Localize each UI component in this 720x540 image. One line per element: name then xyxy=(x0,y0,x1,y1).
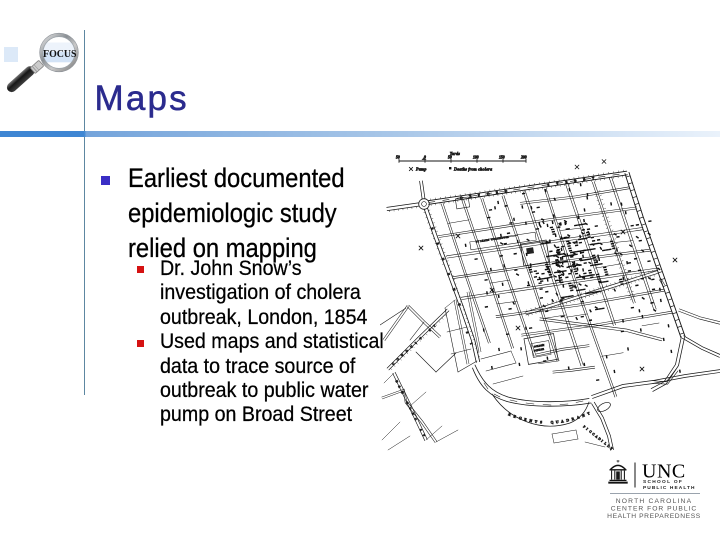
svg-text:Deaths from cholera: Deaths from cholera xyxy=(453,167,492,172)
svg-text:PUBLIC HEALTH: PUBLIC HEALTH xyxy=(643,485,696,491)
svg-text:SQUARE: SQUARE xyxy=(534,348,545,353)
svg-text:E: E xyxy=(574,179,577,183)
svg-text:F: F xyxy=(478,193,481,197)
svg-text:T: T xyxy=(587,411,591,416)
svg-text:R: R xyxy=(508,412,512,417)
svg-text:HEALTH PREPAREDNESS: HEALTH PREPAREDNESS xyxy=(607,513,701,520)
svg-text:100: 100 xyxy=(473,156,479,160)
svg-text:A: A xyxy=(576,415,580,420)
svg-text:E: E xyxy=(583,178,586,182)
svg-text:N: N xyxy=(395,380,399,383)
svg-text:ST JAMES WORKHOUSE: ST JAMES WORKHOUSE xyxy=(476,236,510,244)
svg-text:I: I xyxy=(600,439,603,443)
svg-text:E: E xyxy=(397,385,401,388)
svg-text:D: D xyxy=(566,418,570,423)
svg-text:E: E xyxy=(524,417,528,422)
svg-text:T: T xyxy=(469,342,473,345)
svg-text:50: 50 xyxy=(448,156,452,160)
svg-text:200: 200 xyxy=(521,156,527,160)
svg-text:I: I xyxy=(585,427,588,431)
svg-text:G: G xyxy=(441,257,446,261)
svg-text:N: N xyxy=(582,413,586,418)
svg-text:50: 50 xyxy=(396,156,400,160)
svg-text:S: S xyxy=(540,420,542,424)
svg-text:U: U xyxy=(409,344,414,349)
svg-text:S: S xyxy=(428,328,432,332)
svg-text:U: U xyxy=(556,420,559,424)
svg-text:S: S xyxy=(547,183,550,187)
svg-text:T: T xyxy=(432,324,436,328)
svg-text:R: R xyxy=(430,227,435,231)
svg-text:CENTER FOR PUBLIC: CENTER FOR PUBLIC xyxy=(611,506,697,513)
svg-text:E: E xyxy=(435,242,439,245)
svg-text:D: D xyxy=(405,349,409,353)
svg-text:SCHOOL OF: SCHOOL OF xyxy=(643,479,683,485)
svg-text:NORTH CAROLINA: NORTH CAROLINA xyxy=(616,498,693,505)
svg-text:FOCUS: FOCUS xyxy=(43,49,77,60)
svg-text:150: 150 xyxy=(499,156,505,160)
svg-text:N: N xyxy=(529,419,533,424)
svg-text:T: T xyxy=(422,434,426,437)
svg-text:Pump: Pump xyxy=(415,167,427,172)
svg-text:A: A xyxy=(561,419,565,423)
svg-text:T: T xyxy=(535,420,539,424)
svg-text:Q: Q xyxy=(551,420,554,424)
